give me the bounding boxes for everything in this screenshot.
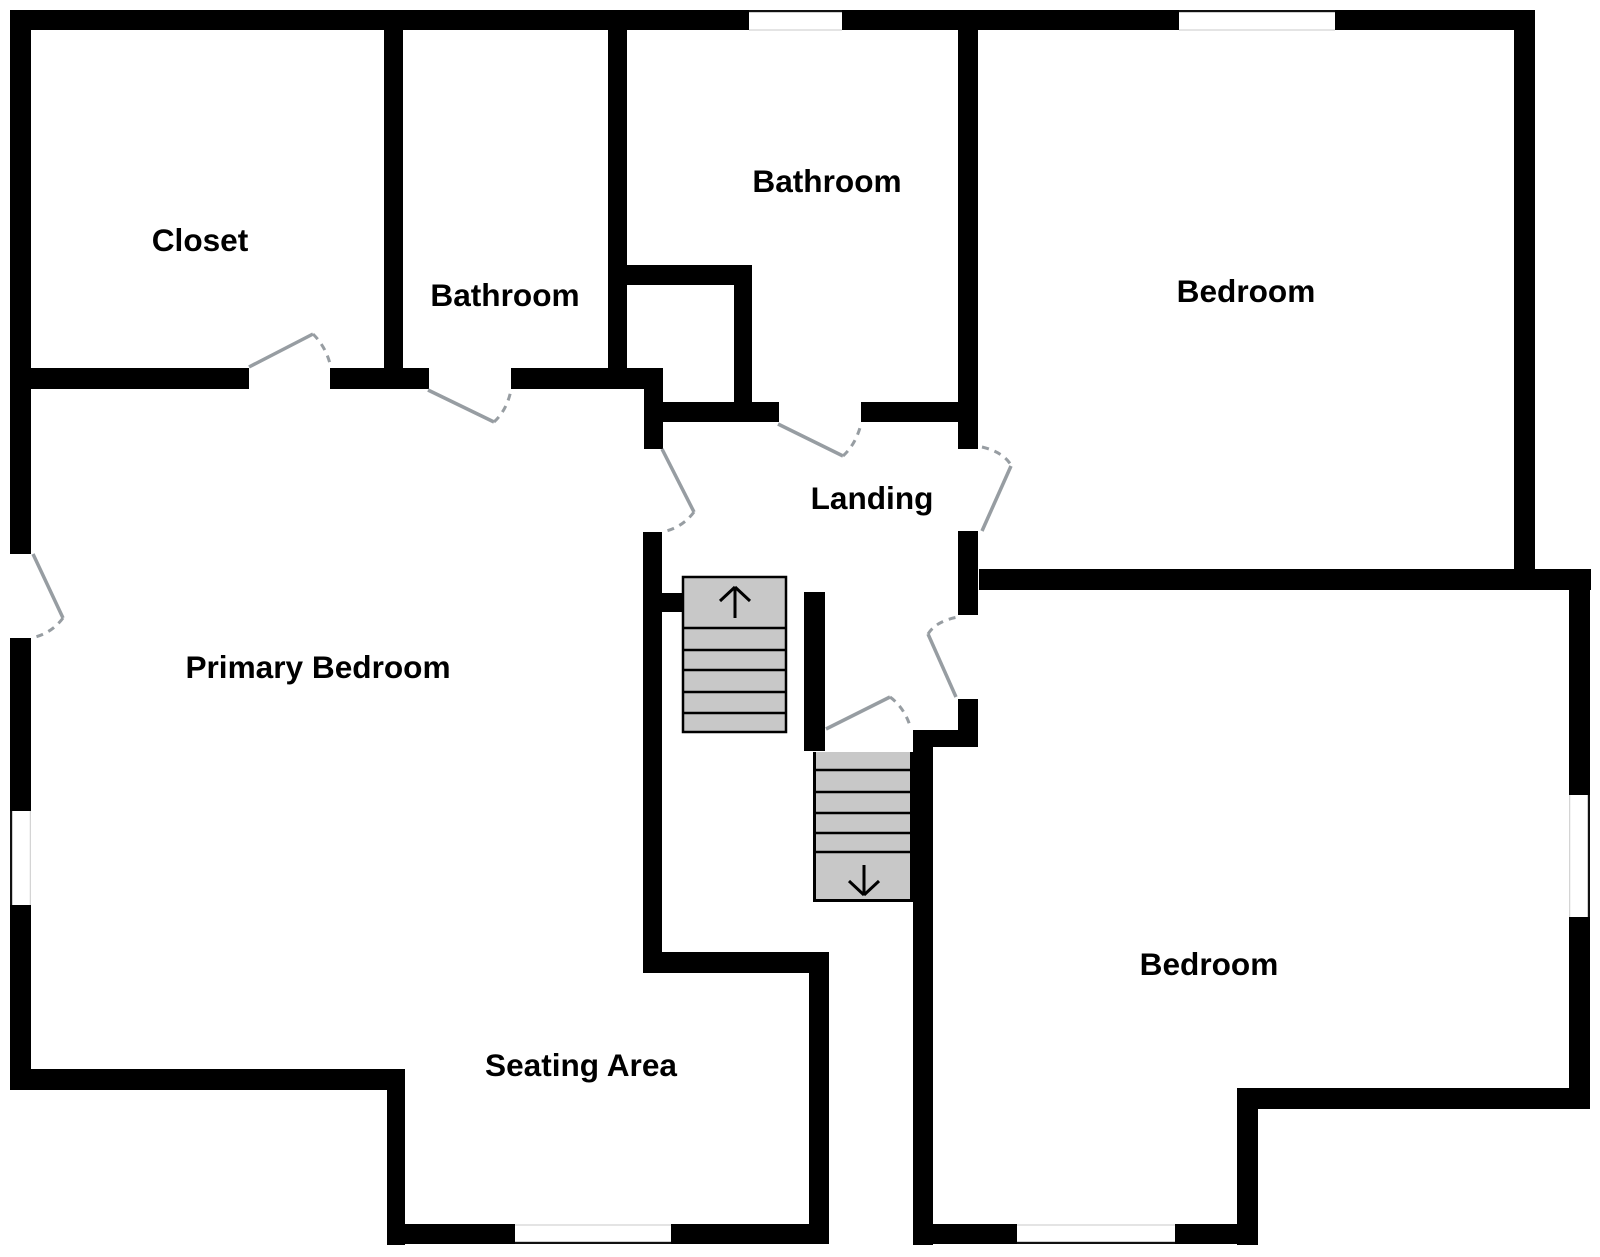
- svg-text:Bedroom: Bedroom: [1140, 946, 1279, 982]
- svg-text:Bathroom: Bathroom: [752, 163, 901, 199]
- svg-text:Closet: Closet: [152, 222, 249, 258]
- svg-text:Bathroom: Bathroom: [430, 277, 579, 313]
- svg-text:Bedroom: Bedroom: [1177, 273, 1316, 309]
- svg-text:Primary Bedroom: Primary Bedroom: [185, 649, 450, 685]
- svg-text:Seating Area: Seating Area: [485, 1047, 677, 1083]
- svg-text:Landing: Landing: [811, 480, 934, 516]
